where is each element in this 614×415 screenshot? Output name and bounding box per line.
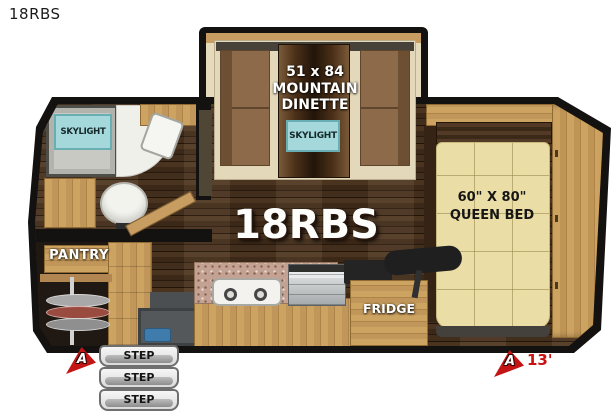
page-title: 18RBS [9, 5, 61, 23]
pantry-plate [46, 318, 110, 331]
awning-marker-letter: A [77, 352, 87, 367]
stove-burner [254, 288, 267, 301]
step-label: STEP [101, 371, 177, 384]
bed-label-group: 60" X 80" QUEEN BED [432, 189, 552, 224]
floorplan-canvas: 18RBS SKYLIGHT [0, 0, 614, 415]
awning-marker-right: A [494, 350, 526, 378]
awning-marker-letter: A [505, 354, 515, 369]
entry-rug [144, 328, 171, 342]
wardrobe-handle [555, 282, 558, 289]
entry-step-1: STEP [99, 345, 179, 367]
queen-bed [436, 142, 550, 328]
dinette-skylight-label: SKYLIGHT [289, 131, 337, 141]
entry-step-2: STEP [99, 367, 179, 389]
dinette-name-text-1: MOUNTAIN [235, 81, 395, 98]
step-label: STEP [101, 393, 177, 406]
pantry-shelf [40, 274, 112, 282]
footboard [436, 326, 550, 337]
kitchen-appliance [288, 264, 346, 306]
wardrobe-handle [555, 215, 558, 222]
pantry-label: PANTRY [46, 248, 112, 263]
bed-size-text: 60" X 80" [432, 189, 552, 207]
entry-step-3: STEP [99, 389, 179, 411]
stove [212, 278, 282, 306]
bath-cabinet [44, 178, 96, 228]
step-label: STEP [101, 349, 177, 362]
wardrobe-handle [555, 150, 558, 157]
dinette-size-text: 51 x 84 [235, 64, 395, 81]
bathroom-wall-bottom [31, 229, 212, 242]
bed-name-text: QUEEN BED [432, 207, 552, 225]
dinette-skylight: SKYLIGHT [286, 120, 340, 152]
model-label: 18RBS [206, 202, 406, 248]
bath-skylight-label: SKYLIGHT [61, 127, 106, 137]
dinette-label: 51 x 84 MOUNTAIN DINETTE [235, 64, 395, 114]
bath-skylight: SKYLIGHT [54, 114, 112, 150]
awning-length-label: 13' [527, 351, 552, 369]
stove-burner [224, 288, 237, 301]
door-frame-panel [199, 110, 212, 196]
awning-marker-left: A [66, 347, 98, 375]
fridge-label: FRIDGE [352, 301, 426, 316]
dinette-name-text-2: DINETTE [235, 97, 395, 114]
headboard [436, 122, 552, 144]
